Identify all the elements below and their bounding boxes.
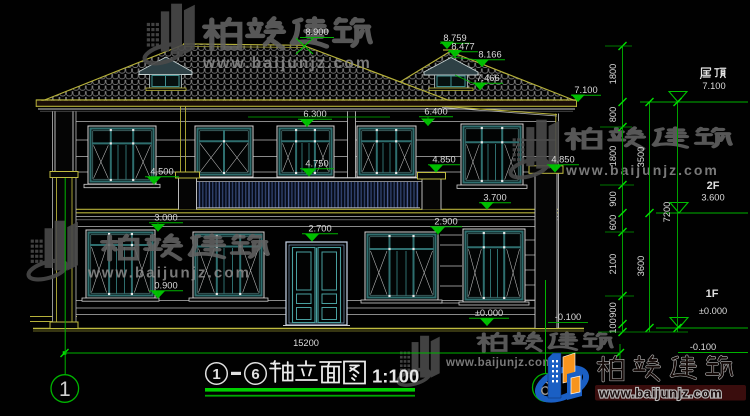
svg-text:6: 6 bbox=[251, 366, 259, 383]
svg-text:1: 1 bbox=[59, 378, 71, 401]
svg-text:3.000: 3.000 bbox=[154, 213, 177, 223]
svg-text:±0.000: ±0.000 bbox=[475, 308, 503, 318]
svg-text:1:100: 1:100 bbox=[372, 366, 419, 387]
svg-text:4.850: 4.850 bbox=[551, 155, 574, 165]
svg-text:900: 900 bbox=[608, 191, 618, 207]
svg-text:3.700: 3.700 bbox=[483, 193, 506, 203]
svg-text:100: 100 bbox=[608, 318, 618, 334]
svg-text:8.166: 8.166 bbox=[478, 50, 501, 60]
svg-text:4.850: 4.850 bbox=[432, 155, 455, 165]
svg-text:±0.000: ±0.000 bbox=[699, 306, 727, 316]
svg-text:600: 600 bbox=[608, 215, 618, 231]
svg-text:www.baijunjz.com: www.baijunjz.com bbox=[202, 55, 372, 72]
svg-text:7.100: 7.100 bbox=[574, 85, 597, 95]
svg-text:6.300: 6.300 bbox=[303, 109, 326, 119]
svg-text:4.750: 4.750 bbox=[305, 159, 328, 169]
svg-text:www.baijunjz.com: www.baijunjz.com bbox=[445, 357, 553, 369]
svg-text:7.466: 7.466 bbox=[476, 73, 499, 83]
svg-text:www.baijunjz.com: www.baijunjz.com bbox=[87, 265, 251, 282]
svg-text:2.700: 2.700 bbox=[308, 224, 331, 234]
svg-text:2100: 2100 bbox=[608, 254, 618, 275]
svg-text:7.100: 7.100 bbox=[702, 81, 725, 91]
svg-text:-0.100: -0.100 bbox=[690, 342, 716, 352]
svg-text:8.900: 8.900 bbox=[305, 27, 328, 37]
svg-text:www.baijunjz.com: www.baijunjz.com bbox=[598, 386, 722, 401]
svg-text:800: 800 bbox=[608, 107, 618, 123]
svg-text:6.400: 6.400 bbox=[424, 107, 447, 117]
svg-text:4.500: 4.500 bbox=[150, 167, 173, 177]
svg-text:2F: 2F bbox=[707, 180, 720, 192]
svg-text:1800: 1800 bbox=[608, 146, 618, 167]
svg-text:15200: 15200 bbox=[293, 338, 319, 348]
svg-text:1F: 1F bbox=[706, 288, 719, 300]
svg-text:1: 1 bbox=[212, 366, 220, 383]
svg-text:2.900: 2.900 bbox=[434, 217, 457, 227]
svg-text:3600: 3600 bbox=[636, 256, 646, 277]
svg-text:-0.100: -0.100 bbox=[555, 312, 581, 322]
svg-text:1800: 1800 bbox=[608, 64, 618, 85]
svg-text:3.600: 3.600 bbox=[701, 193, 724, 203]
svg-text:7200: 7200 bbox=[662, 202, 672, 223]
svg-text:0.900: 0.900 bbox=[154, 281, 177, 291]
svg-text:3500: 3500 bbox=[636, 147, 646, 168]
svg-text:900: 900 bbox=[608, 302, 618, 318]
